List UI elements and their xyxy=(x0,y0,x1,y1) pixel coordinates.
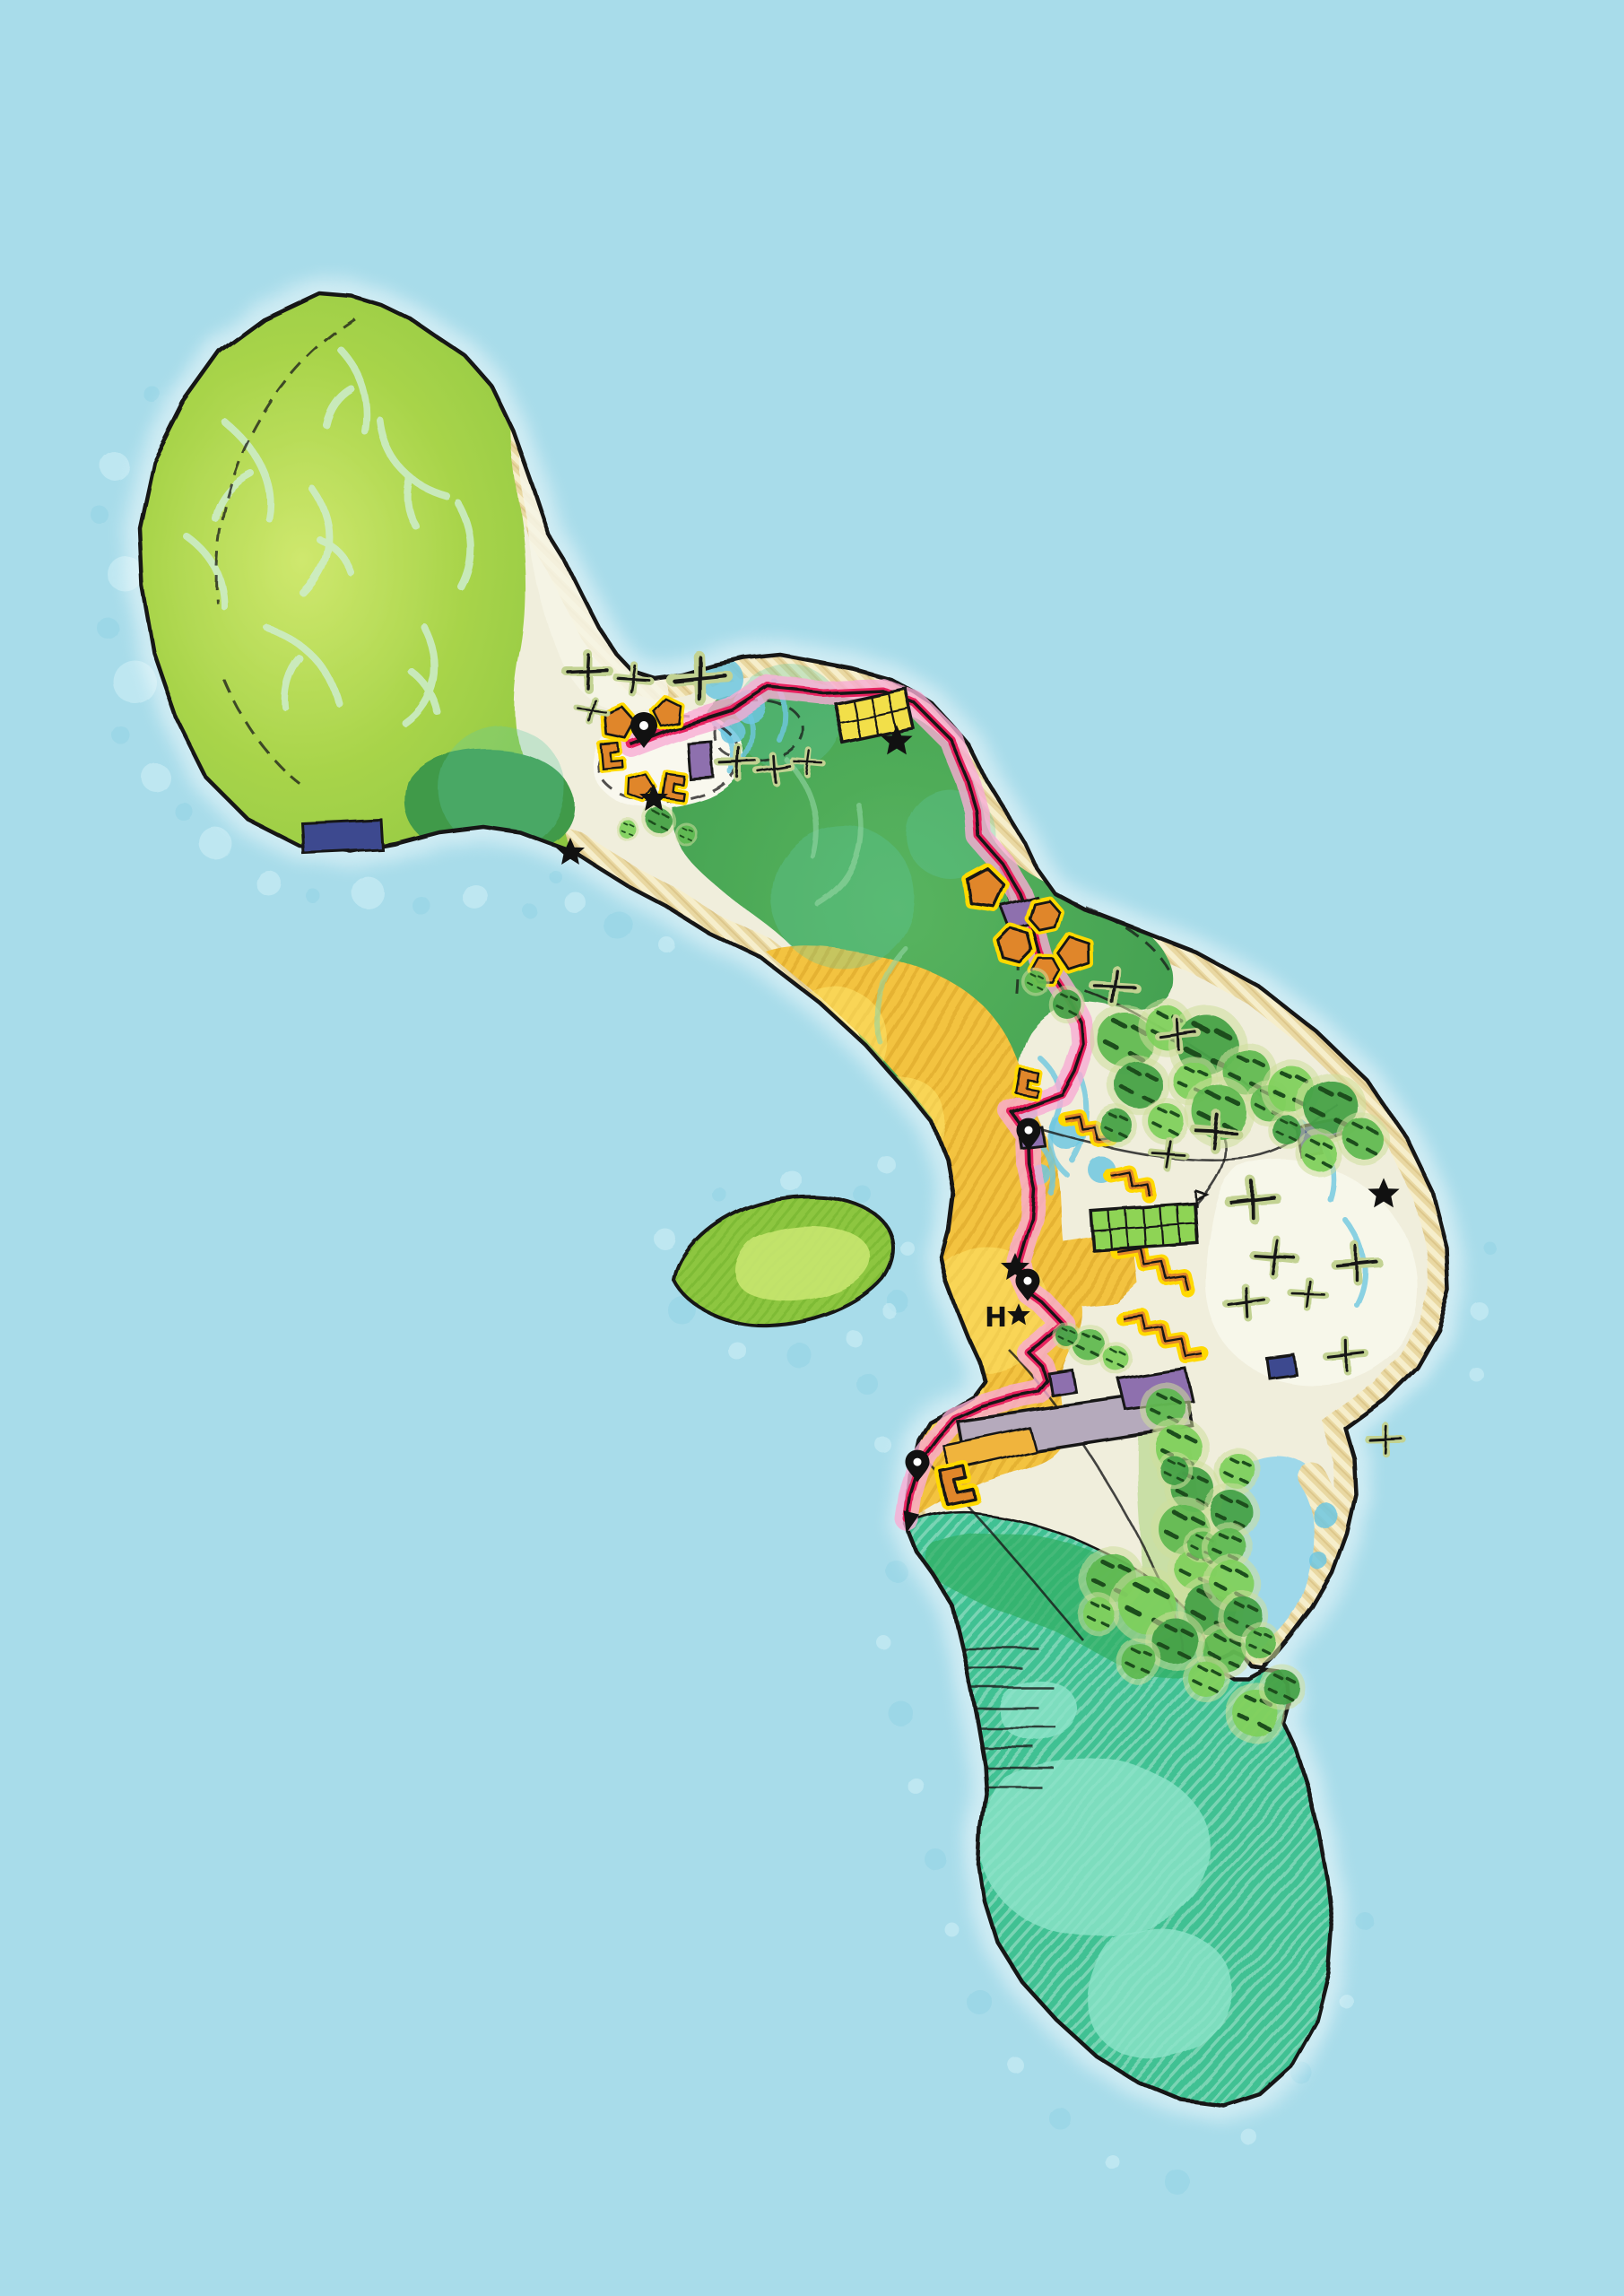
tree-icon xyxy=(1078,1594,1120,1636)
tree-icon xyxy=(1048,986,1086,1023)
landmark-building[interactable] xyxy=(941,1466,975,1505)
tree-icon xyxy=(1259,1665,1306,1711)
tree-icon xyxy=(1156,1452,1194,1490)
building-navy[interactable] xyxy=(302,820,383,854)
map-art xyxy=(0,0,1624,2296)
tree-icon xyxy=(674,822,698,846)
tree-icon xyxy=(1240,1622,1282,1665)
island-map: H xyxy=(0,0,1624,2296)
tree-icon xyxy=(1053,1322,1081,1350)
hospital-marker[interactable]: H xyxy=(985,1302,1007,1334)
landmark-building[interactable] xyxy=(994,926,1035,964)
landmark-building[interactable] xyxy=(1015,1068,1039,1096)
map-canvas: H xyxy=(0,0,1624,2296)
landmark-building[interactable] xyxy=(1026,899,1062,932)
tree-icon xyxy=(1096,1105,1138,1147)
building-purple[interactable] xyxy=(1049,1370,1076,1396)
building-purple[interactable] xyxy=(687,741,713,778)
tree-icon xyxy=(1337,1113,1388,1164)
tree-icon xyxy=(643,804,675,837)
tree-icon xyxy=(1100,1343,1133,1375)
tree-icon xyxy=(1268,1111,1306,1149)
building-navy[interactable] xyxy=(1266,1354,1296,1378)
landmark-building[interactable] xyxy=(663,773,686,800)
tree-icon xyxy=(1116,1638,1162,1684)
tree-icon xyxy=(1142,1098,1189,1144)
tree-icon xyxy=(616,818,639,841)
tree-icon xyxy=(1021,968,1049,996)
